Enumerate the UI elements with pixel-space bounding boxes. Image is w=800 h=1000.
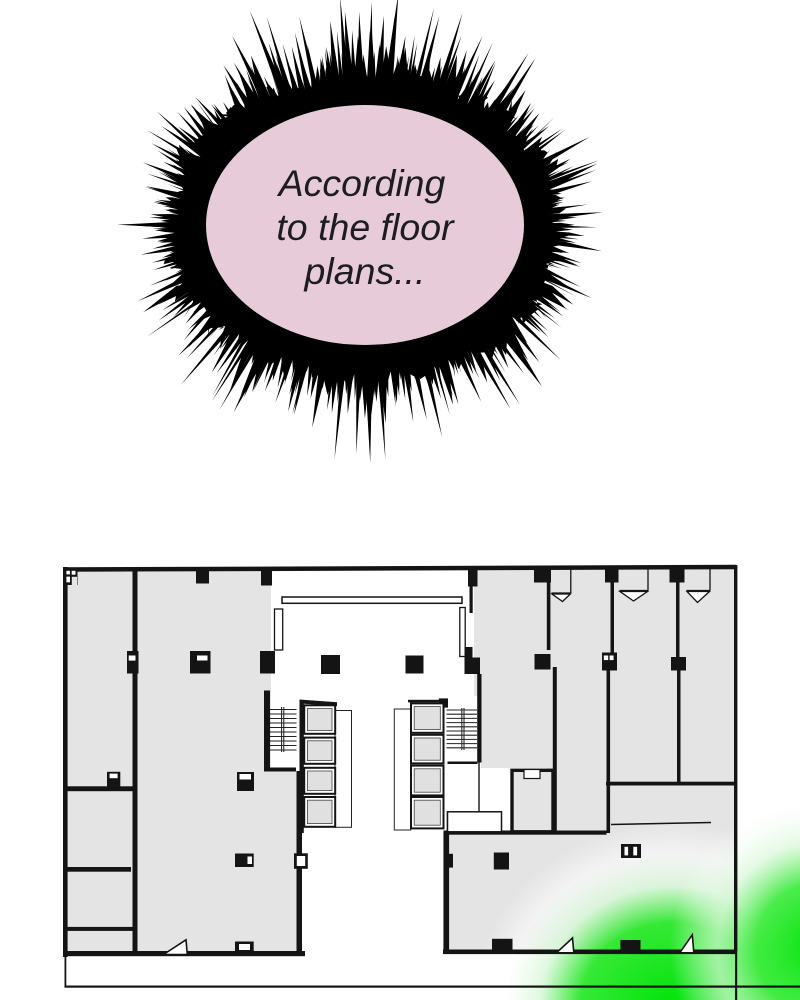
- svg-text:plans...: plans...: [304, 250, 426, 292]
- svg-text:According: According: [277, 162, 446, 204]
- svg-text:to the floor: to the floor: [276, 206, 455, 248]
